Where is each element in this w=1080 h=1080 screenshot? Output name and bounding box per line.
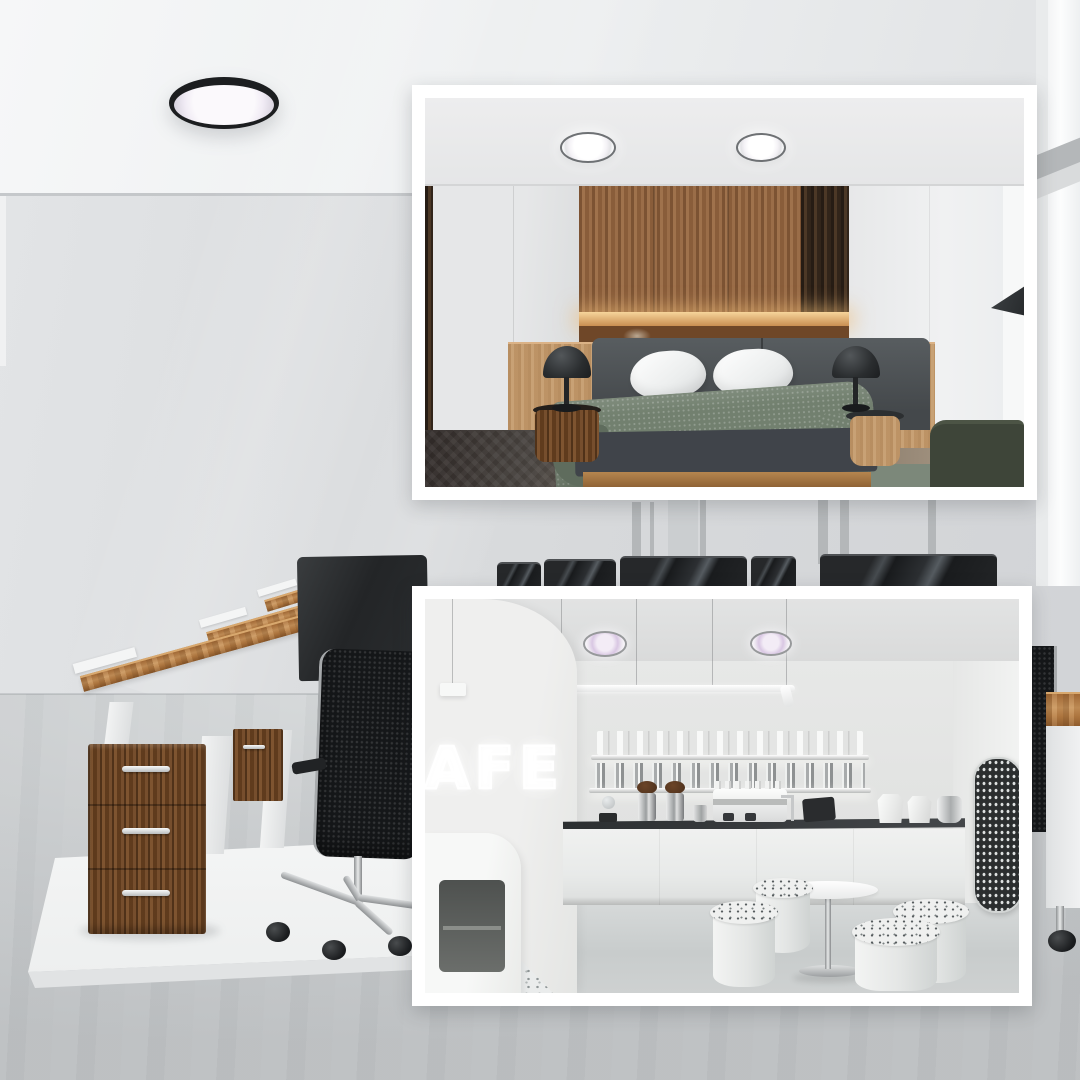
mesh-arch-panel (973, 757, 1019, 913)
coffee-syphon (599, 813, 617, 822)
window-mullion (632, 502, 641, 564)
drawer-seam (88, 804, 206, 806)
desk-side-panel (1046, 726, 1080, 908)
drawer-handle (122, 828, 170, 834)
window-mullion (650, 502, 654, 564)
wall-corner-highlight (0, 196, 6, 366)
chair-caster (322, 940, 346, 960)
wood-paneling (579, 186, 801, 314)
window-column (1048, 0, 1080, 586)
window-mullion (700, 498, 706, 564)
monitor-back (751, 556, 796, 589)
cafe-ceiling-lamp (583, 631, 627, 657)
table-pedestal (825, 895, 831, 969)
linear-pendant-light (555, 685, 795, 692)
bedroom-scene (425, 98, 1024, 487)
chair-caster (388, 936, 412, 956)
monitor-back (620, 556, 747, 589)
espresso-cups-row (715, 781, 785, 789)
coffee-grinder (638, 793, 656, 821)
espresso-group-head (723, 813, 734, 821)
espresso-machine (713, 789, 787, 822)
window-mullion (668, 498, 698, 564)
bedroom-ceiling (425, 98, 1024, 186)
window-light-sliver (1003, 186, 1024, 460)
led-strip-glow (579, 312, 849, 326)
table-lamp-base (552, 404, 581, 412)
drawer-unit (88, 744, 206, 934)
drawer-handle (122, 890, 170, 896)
coffee-syphon-globe (602, 796, 615, 809)
monitor-back (820, 554, 997, 589)
table-lamp-base (842, 404, 870, 412)
milk-pitcher (693, 805, 707, 822)
panel-seam (727, 186, 729, 314)
stool-terrazzo-top (710, 901, 778, 924)
cafe-ceiling-lamp (750, 631, 792, 656)
faucet-arm (781, 795, 793, 798)
sofa (930, 420, 1024, 487)
bedroom-ceiling-lamp (560, 132, 616, 163)
reception-desk (425, 833, 521, 993)
espresso-machine-band (713, 799, 787, 805)
chair-caster (1048, 930, 1076, 952)
cabinet-seam (659, 829, 660, 905)
cafe-neon-sign: CAFE (425, 739, 564, 797)
nightstand (535, 410, 599, 462)
pendant-wire (712, 599, 713, 685)
coffee-grinder (666, 793, 684, 821)
panel-seam (653, 186, 655, 314)
drawer-unit (233, 729, 283, 801)
chair-caster (266, 922, 290, 942)
bed-wood-base (583, 472, 871, 487)
monitor-back (544, 559, 616, 589)
stool-terrazzo-top (753, 878, 813, 898)
wall-shelf (591, 755, 869, 760)
reception-desk-opening (439, 880, 505, 972)
menu-tablet (802, 797, 836, 823)
bed-frame-front (575, 427, 878, 476)
office-desk (1046, 692, 1080, 728)
cafe-scene: CAFE (425, 599, 1019, 993)
stool-terrazzo-top (852, 918, 940, 946)
pendant-wire (636, 599, 637, 687)
monitor-back (497, 562, 541, 589)
wardrobe-edge (425, 186, 433, 448)
cafe-inset-frame: CAFE (412, 586, 1032, 1006)
faucet (791, 795, 794, 821)
mini-pendant-cord (452, 599, 453, 683)
paper-bag (877, 794, 904, 823)
bedroom-ceiling-lamp (736, 133, 786, 162)
office-ceiling-lamp (169, 77, 279, 129)
kettle (937, 796, 962, 823)
paper-bag (907, 796, 932, 823)
table-lamp-stem (853, 377, 858, 407)
office-chair-back (312, 648, 426, 860)
drawer-handle (243, 745, 265, 749)
nightstand (850, 416, 900, 466)
espresso-group-head (745, 813, 756, 821)
mini-pendant-lamp (440, 683, 466, 696)
collage-canvas: CAFE (0, 0, 1080, 1080)
upper-cabinet-dark (801, 186, 849, 314)
drawer-seam (88, 868, 206, 870)
shelf-canisters-white (597, 731, 863, 755)
table-lamp-stem (564, 377, 569, 407)
opening-shelf (443, 926, 501, 930)
office-ceiling-lamp-face (174, 85, 274, 125)
bedroom-inset-frame (412, 85, 1037, 500)
drawer-handle (122, 766, 170, 772)
